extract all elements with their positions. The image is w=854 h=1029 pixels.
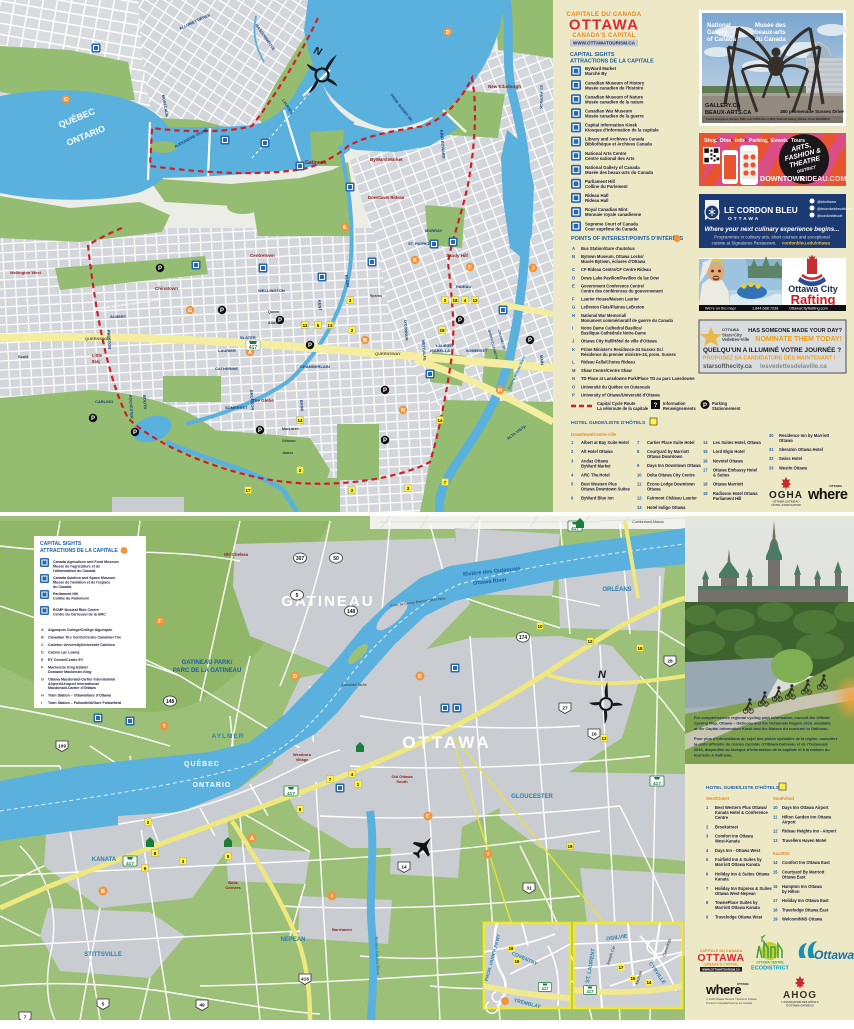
svg-text:Rideau Falls/Chutes Rideau: Rideau Falls/Chutes Rideau — [581, 360, 635, 365]
svg-text:BOOTH: BOOTH — [142, 395, 148, 410]
svg-text:Colline du Parlement: Colline du Parlement — [585, 184, 628, 189]
svg-text:EY Centre/Centre EY: EY Centre/Centre EY — [48, 658, 84, 662]
svg-text:Ottawa: Ottawa — [814, 948, 854, 962]
svg-text:Cour suprême du Canada: Cour suprême du Canada — [585, 226, 638, 231]
svg-text:Alt Hotel Ottawa: Alt Hotel Ottawa — [581, 449, 613, 454]
svg-text:ByWard Market: ByWard Market — [581, 463, 611, 468]
svg-text:@lecordonbleuottawa: @lecordonbleuottawa — [817, 207, 852, 211]
svg-text:ATTRACTIONS DE LA CAPITALE: ATTRACTIONS DE LA CAPITALE — [40, 548, 118, 554]
svg-text:Gatineau: Gatineau — [305, 160, 326, 166]
svg-text:WELLINGTON: WELLINGTON — [258, 288, 285, 293]
svg-text:Italy: Italy — [92, 359, 101, 364]
svg-text:10: 10 — [773, 805, 778, 810]
svg-text:D: D — [572, 275, 575, 280]
svg-text:16: 16 — [703, 458, 708, 463]
svg-text:Musée des: Musée des — [755, 23, 786, 29]
svg-text:OttawaCityRafting.com: OttawaCityRafting.com — [789, 307, 828, 311]
svg-text:H: H — [498, 388, 502, 394]
svg-text:Alexandre Taché: Alexandre Taché — [341, 683, 366, 687]
svg-text:ONTARIO: ONTARIO — [193, 782, 232, 789]
svg-text:Centre des conférences du gouv: Centre des conférences du gouvernement — [581, 289, 664, 294]
svg-text:CHAMBERLAIN: CHAMBERLAIN — [300, 364, 330, 369]
svg-text:P: P — [91, 416, 95, 422]
svg-text:SLATER: SLATER — [240, 335, 256, 340]
svg-text:WWW.OTTAWATOURISM.CA: WWW.OTTAWATOURISM.CA — [573, 41, 636, 46]
svg-text:Gallery: Gallery — [707, 30, 728, 36]
svg-text:A: A — [41, 628, 44, 632]
svg-text:7: 7 — [24, 1015, 27, 1021]
svg-text:tourisme à Gatineau.: tourisme à Gatineau. — [694, 752, 733, 757]
svg-text:TD Place at Lansdowne Park/Pla: TD Place at Lansdowne Park/Place TD au p… — [581, 376, 695, 381]
svg-text:GATINEAU PARK/: GATINEAU PARK/ — [182, 660, 233, 666]
svg-text:ECODISTRICT: ECODISTRICT — [751, 966, 789, 972]
svg-text:LAURIER: LAURIER — [218, 348, 236, 353]
svg-text:West/Ouest: West/Ouest — [706, 796, 730, 801]
svg-text:14: 14 — [773, 860, 778, 865]
svg-text:NEPEAN: NEPEAN — [280, 937, 305, 943]
svg-text:E: E — [343, 225, 347, 231]
svg-text:18: 18 — [637, 646, 643, 651]
svg-text:OTTAWA: OTTAWA — [722, 328, 739, 332]
svg-text:417: 417 — [587, 989, 595, 994]
svg-text:Village: Village — [296, 757, 310, 762]
svg-text:East/Est: East/Est — [773, 851, 790, 856]
svg-text:National: National — [707, 23, 731, 29]
svg-text:Vedettes•Ville: Vedettes•Ville — [722, 337, 750, 342]
svg-text:Mackenzie King Estate/: Mackenzie King Estate/ — [48, 666, 88, 670]
svg-text:15: 15 — [773, 870, 778, 875]
svg-text:Musée canadien de la guerre: Musée canadien de la guerre — [585, 114, 644, 119]
svg-text:Renseignements: Renseignements — [663, 406, 696, 411]
svg-text:Days Inn Ottawa Airport: Days Inn Ottawa Airport — [782, 805, 829, 810]
svg-text:Musée des beaux-arts du Canada: Musée des beaux-arts du Canada — [585, 170, 654, 175]
svg-text:C: C — [572, 267, 575, 272]
svg-text:P: P — [528, 338, 532, 344]
svg-text:QUÉBEC: QUÉBEC — [184, 759, 220, 768]
svg-text:Ottawa City Hall/Hôtel de vill: Ottawa City Hall/Hôtel de ville d'Ottawa — [581, 339, 658, 344]
svg-text:Travelodge Ottawa West: Travelodge Ottawa West — [715, 914, 763, 919]
svg-text:B: B — [101, 889, 105, 895]
svg-text:Sparks: Sparks — [370, 294, 382, 298]
svg-text:380 promenade Sussex Drive: 380 promenade Sussex Drive — [780, 109, 844, 114]
svg-text:Parliament Hill: Parliament Hill — [53, 592, 78, 596]
svg-text:Programmes in culinary arts, s: Programmes in culinary arts, short cours… — [714, 235, 829, 240]
svg-text:18: 18 — [452, 298, 458, 303]
svg-text:16: 16 — [591, 732, 597, 738]
svg-text:I: I — [41, 701, 42, 705]
svg-text:12: 12 — [773, 829, 778, 834]
svg-text:M: M — [572, 368, 576, 373]
svg-text:by Hilton: by Hilton — [782, 889, 800, 894]
svg-text:Westin Ottawa: Westin Ottawa — [779, 465, 808, 470]
svg-text:CANADA'S CAPITAL: CANADA'S CAPITAL — [703, 963, 739, 967]
svg-text:South/Sud: South/Sud — [773, 796, 794, 801]
svg-text:WelcomINNS Ottawa: WelcomINNS Ottawa — [782, 917, 823, 922]
svg-text:West-Kanata: West-Kanata — [715, 839, 740, 844]
svg-text:Ottawa West-Nepean: Ottawa West-Nepean — [715, 891, 756, 896]
svg-text:Basilique-Cathédrale Notre-Dam: Basilique-Cathédrale Notre-Dame — [581, 331, 647, 336]
svg-text:LAURIER: LAURIER — [436, 344, 453, 348]
svg-text:C: C — [41, 643, 44, 647]
svg-text:Little: Little — [92, 353, 103, 358]
svg-text:H: H — [572, 313, 575, 318]
svg-text:19: 19 — [439, 328, 445, 333]
svg-text:19: 19 — [703, 491, 708, 496]
svg-text:•: • — [731, 138, 733, 144]
svg-text:O: O — [64, 97, 69, 103]
svg-text:Airport/Aéroport international: Airport/Aéroport international — [48, 682, 99, 686]
svg-text:Monnaie royale canadienne: Monnaie royale canadienne — [585, 212, 642, 217]
svg-text:•: • — [767, 138, 769, 144]
svg-text:P: P — [278, 318, 282, 324]
svg-text:N: N — [401, 408, 405, 414]
svg-text:28: 28 — [667, 659, 673, 665]
svg-text:109: 109 — [58, 744, 66, 750]
svg-text:H: H — [41, 694, 44, 698]
svg-text:K: K — [413, 258, 417, 264]
svg-text:Université du Québec en Outaou: Université du Québec en Outaouais — [581, 384, 651, 389]
svg-text:Rideau Hall: Rideau Hall — [585, 198, 608, 203]
svg-text:We're on the map!: We're on the map! — [705, 307, 736, 311]
svg-text:Cartier Place Suite Hotel: Cartier Place Suite Hotel — [647, 440, 695, 445]
svg-text:LE CORDON BLEU: LE CORDON BLEU — [724, 206, 798, 215]
svg-text:HAS SOMEONE MADE YOUR DAY?: HAS SOMEONE MADE YOUR DAY? — [748, 328, 842, 334]
svg-text:MURRAY: MURRAY — [425, 228, 443, 233]
svg-text:417: 417 — [126, 861, 134, 867]
svg-text:ByWard Blue Inn: ByWard Blue Inn — [581, 496, 614, 501]
svg-text:307: 307 — [296, 556, 305, 562]
svg-text:Rafting: Rafting — [791, 292, 836, 307]
svg-text:148: 148 — [347, 609, 356, 615]
svg-text:Train Station – Fallowfield/Ga: Train Station – Fallowfield/Gare Fallowf… — [48, 701, 121, 705]
svg-text:P: P — [383, 388, 387, 394]
svg-text:14: 14 — [297, 418, 303, 423]
svg-text:Pour plus d'informations au su: Pour plus d'informations au sujet des pi… — [694, 736, 837, 741]
svg-text:Barrhaven: Barrhaven — [332, 927, 352, 932]
svg-text:Dows Lake Pavilion/Pavillon du: Dows Lake Pavilion/Pavillon du lac Dow — [581, 275, 660, 280]
svg-text:Colline du Parlement: Colline du Parlement — [53, 596, 90, 600]
svg-text:Sandy Hill: Sandy Hill — [446, 253, 468, 258]
svg-text:Kanata: Kanata — [715, 877, 729, 882]
svg-text:G: G — [41, 677, 44, 681]
svg-text:A: A — [572, 246, 575, 251]
svg-text:where: where — [807, 487, 848, 503]
svg-text:417: 417 — [542, 986, 550, 991]
svg-text:cordonbleu.edu/ottawa: cordonbleu.edu/ottawa — [782, 241, 831, 246]
svg-text:Downtown Rideau: Downtown Rideau — [368, 195, 405, 200]
svg-text:Events: Events — [771, 138, 788, 144]
svg-text:ORLÉANS: ORLÉANS — [602, 585, 631, 593]
svg-text:17: 17 — [773, 898, 778, 903]
svg-text:17: 17 — [619, 965, 624, 970]
svg-text:OTTAWA: OTTAWA — [728, 216, 760, 222]
svg-text:POINTS OF INTEREST/POINTS D'IN: POINTS OF INTEREST/POINTS D'INTÉRÊTS — [571, 234, 684, 242]
svg-text:Queen: Queen — [268, 310, 279, 314]
svg-text:27: 27 — [562, 706, 568, 712]
svg-text:HOTEL ASSOCIATION: HOTEL ASSOCIATION — [771, 503, 800, 507]
svg-text:Ottawa Downtown Suites: Ottawa Downtown Suites — [581, 487, 631, 492]
svg-text:417: 417 — [287, 791, 295, 797]
svg-text:5: 5 — [102, 1002, 105, 1008]
svg-text:417: 417 — [249, 345, 258, 351]
svg-text:LeBreton Flats/Plaines LeBreto: LeBreton Flats/Plaines LeBreton — [581, 305, 645, 310]
svg-text:B: B — [41, 636, 44, 640]
svg-text:D: D — [293, 674, 297, 680]
svg-text:Centre du Carrousel de la GRC: Centre du Carrousel de la GRC — [53, 612, 106, 616]
svg-text:P: P — [308, 343, 312, 349]
svg-text:30: 30 — [769, 433, 774, 438]
svg-text:14: 14 — [437, 418, 443, 423]
svg-text:Brookstreet: Brookstreet — [715, 824, 739, 829]
svg-text:AHOG: AHOG — [783, 990, 817, 1001]
svg-text:NOMINATE THEM TODAY!: NOMINATE THEM TODAY! — [755, 336, 842, 343]
svg-text:Ottawa East: Ottawa East — [782, 875, 806, 880]
svg-text:QUELQU'UN A ILLUMINÉ VOTRE JOU: QUELQU'UN A ILLUMINÉ VOTRE JOURNÉE ? — [703, 345, 841, 354]
svg-text:ATTRACTIONS DE LA CAPITALE: ATTRACTIONS DE LA CAPITALE — [570, 59, 654, 65]
svg-text:15: 15 — [703, 449, 708, 454]
svg-text:174: 174 — [519, 635, 528, 641]
svg-text:Info: Info — [735, 138, 745, 144]
svg-text:CF Rideau Centre/CF Centre Rid: CF Rideau Centre/CF Centre Rideau — [581, 267, 651, 272]
svg-text:Comfort Inn Ottawa East: Comfort Inn Ottawa East — [782, 860, 830, 865]
svg-text:16: 16 — [773, 884, 778, 889]
svg-text:14: 14 — [703, 440, 708, 445]
svg-text:beaux-arts: beaux-arts — [755, 30, 786, 36]
svg-text:Centre national des Arts: Centre national des Arts — [585, 156, 635, 161]
svg-text:Marché By: Marché By — [585, 71, 607, 76]
svg-text:Canada Agriculture and Food Mu: Canada Agriculture and Food Museum — [53, 560, 119, 564]
svg-text:Carleton University/Université: Carleton University/Université Carleton — [48, 643, 115, 647]
svg-text:Gilmour: Gilmour — [282, 439, 296, 443]
svg-text:MacLaren: MacLaren — [282, 427, 299, 431]
svg-text:Travellers Haven Motel: Travellers Haven Motel — [782, 838, 826, 843]
svg-text:12: 12 — [472, 298, 478, 303]
svg-text:11: 11 — [637, 482, 642, 487]
svg-text:P: P — [133, 430, 137, 436]
svg-text:Days Inn Downtown Ottawa: Days Inn Downtown Ottawa — [647, 463, 701, 468]
svg-text:Marriott Ottawa Kanata: Marriott Ottawa Kanata — [715, 905, 761, 910]
svg-text:12: 12 — [637, 496, 642, 501]
svg-text:du Canada: du Canada — [53, 585, 72, 589]
svg-text:2016, disponible au kiosque d': 2016, disponible au kiosque d'informatio… — [694, 747, 830, 752]
svg-text:32: 32 — [769, 456, 774, 461]
svg-text:Canadian Tire Centre/Centre Ca: Canadian Tire Centre/Centre Canadian Tir… — [48, 636, 121, 640]
svg-text:© 2015 Ottawa Tourism / Touris: © 2015 Ottawa Tourism / Tourisme Ottawa — [706, 997, 757, 1001]
svg-text:Marriott Ottawa Kanata: Marriott Ottawa Kanata — [715, 862, 761, 867]
svg-text:417: 417 — [653, 781, 661, 787]
svg-text:QUEENSWAY: QUEENSWAY — [375, 351, 401, 356]
svg-text:Airport: Airport — [782, 819, 796, 824]
svg-text:Louise Bourgeois, Maman, 1999,: Louise Bourgeois, Maman, 1999, cast 2003… — [706, 117, 830, 121]
svg-text:G: G — [572, 305, 575, 310]
svg-text:50: 50 — [333, 556, 339, 562]
svg-text:OTTAWA: OTTAWA — [402, 733, 491, 752]
svg-text:148: 148 — [166, 699, 175, 705]
svg-text:Macdonald-Cartier d'Ottawa: Macdonald-Cartier d'Ottawa — [48, 686, 97, 690]
svg-text:Casino Lac Leamy: Casino Lac Leamy — [48, 651, 80, 655]
svg-text:11: 11 — [303, 323, 308, 328]
svg-text:Musée de l'agriculture et de: Musée de l'agriculture et de — [53, 564, 100, 568]
svg-text:P: P — [383, 438, 387, 444]
svg-text:Days Inn - Ottawa West: Days Inn - Ottawa West — [715, 848, 761, 853]
svg-text:12: 12 — [587, 639, 593, 644]
svg-text:Monument commémoratif de guerr: Monument commémoratif de guerre du Canad… — [581, 318, 674, 323]
svg-text:Corners: Corners — [225, 885, 241, 890]
svg-text:Parking: Parking — [749, 138, 768, 144]
svg-text:ByWard Market: ByWard Market — [370, 157, 403, 162]
svg-text:Ottawa: Ottawa — [779, 438, 793, 443]
svg-text:RCMP Musical Ride Centre: RCMP Musical Ride Centre — [53, 608, 99, 612]
svg-text:D: D — [41, 651, 44, 655]
svg-text:I: I — [572, 326, 573, 331]
svg-text:Musée canadien de l'histoire: Musée canadien de l'histoire — [585, 85, 644, 90]
svg-text:Downtown/Centre-ville: Downtown/Centre-ville — [571, 432, 617, 437]
svg-text:Domaine Mackenzie-King: Domaine Mackenzie-King — [48, 670, 91, 674]
svg-text:Bus Station/Gare d'autobus: Bus Station/Gare d'autobus — [581, 246, 635, 251]
svg-text:@lcbottawa: @lcbottawa — [817, 200, 836, 204]
svg-text:Bibliothèque et Archives Canad: Bibliothèque et Archives Canada — [585, 142, 653, 147]
svg-text:J: J — [531, 266, 534, 272]
svg-text:18: 18 — [773, 907, 778, 912]
svg-text:416: 416 — [301, 977, 309, 983]
svg-text:Ottawa Downtown: Ottawa Downtown — [647, 454, 683, 459]
svg-text:ALBERT: ALBERT — [110, 314, 127, 319]
svg-text:D: D — [446, 30, 450, 36]
svg-text:CARLING: CARLING — [95, 399, 113, 404]
svg-text:University of Ottawa/Universit: University of Ottawa/Université d'Ottawa — [581, 393, 660, 398]
svg-text:•: • — [745, 138, 747, 144]
svg-text:C: C — [426, 814, 430, 820]
svg-text:Musée canadien de la nature: Musée canadien de la nature — [585, 99, 644, 104]
svg-text:P: P — [703, 403, 707, 409]
svg-text:19: 19 — [773, 917, 778, 922]
svg-text:Holiday Inn Ottawa East: Holiday Inn Ottawa East — [782, 898, 829, 903]
svg-text:OTTAWA: OTTAWA — [569, 17, 639, 34]
svg-text:@cordonbleuott: @cordonbleuott — [817, 214, 842, 218]
svg-text:James: James — [282, 451, 293, 455]
svg-text:10: 10 — [637, 472, 642, 477]
svg-text:MAIN: MAIN — [539, 355, 545, 366]
svg-text:Fairmont Château Laurier: Fairmont Château Laurier — [647, 496, 697, 501]
svg-text:Wellington West: Wellington West — [10, 270, 42, 275]
svg-text:Sheraton Ottawa Hotel: Sheraton Ottawa Hotel — [779, 447, 823, 452]
svg-text:CANADA'S CAPITAL: CANADA'S CAPITAL — [572, 33, 635, 39]
svg-text:•: • — [716, 138, 718, 144]
svg-text:BANK: BANK — [299, 400, 305, 412]
svg-text:OTTAWA CENTRE: OTTAWA CENTRE — [756, 961, 783, 965]
svg-text:Musée Bytown, écluses d'Ottawa: Musée Bytown, écluses d'Ottawa — [581, 259, 646, 264]
svg-text:Musée de l'aviation et de l'es: Musée de l'aviation et de l'espace — [53, 580, 110, 584]
svg-text:1.844.688.7238: 1.844.688.7238 — [752, 307, 778, 311]
svg-text:P: P — [258, 428, 262, 434]
svg-text:P: P — [220, 308, 224, 314]
svg-text:where: where — [705, 982, 741, 997]
svg-text:Centretown: Centretown — [250, 253, 275, 258]
svg-text:PROPOSEZ SA CANDIDATURE DÈS MA: PROPOSEZ SA CANDIDATURE DÈS MAINTENANT ! — [703, 354, 836, 362]
svg-text:Algonquin College/Collège Algo: Algonquin College/Collège Algonquin — [48, 628, 112, 632]
svg-text:ST. PATRICK: ST. PATRICK — [539, 85, 544, 109]
svg-text:Swiss Hotel: Swiss Hotel — [779, 456, 802, 461]
svg-text:E: E — [572, 284, 575, 289]
svg-text:du Canada: du Canada — [755, 37, 786, 43]
svg-text:Travelodge Ottawa East: Travelodge Ottawa East — [782, 907, 829, 912]
svg-text:ARC The.Hotel: ARC The.Hotel — [581, 472, 610, 477]
svg-text:Shaw Centre/Centre Shaw: Shaw Centre/Centre Shaw — [581, 368, 633, 373]
svg-text:Old Chelsea: Old Chelsea — [224, 552, 249, 557]
svg-text:Printed in Canada/Imprimé au C: Printed in Canada/Imprimé au Canada — [706, 1001, 752, 1005]
svg-text:CAPITAL SIGHTS: CAPITAL SIGHTS — [570, 52, 615, 58]
svg-text:49: 49 — [199, 1003, 205, 1009]
svg-text:L: L — [572, 360, 575, 365]
svg-text:11: 11 — [773, 814, 778, 819]
svg-text:KANATA: KANATA — [92, 857, 117, 863]
svg-text:lesvedettesdelaville.ca: lesvedettesdelaville.ca — [760, 363, 827, 370]
svg-text:F: F — [572, 296, 575, 301]
svg-text:Cycling Map, Ottawa – Gatineau: Cycling Map, Ottawa – Gatineau and the O… — [694, 720, 831, 725]
svg-text:BEAUX-ARTS.CA: BEAUX-ARTS.CA — [705, 110, 751, 116]
svg-text:Laurier House/Maison Laurier: Laurier House/Maison Laurier — [581, 296, 639, 301]
svg-text:N: N — [572, 376, 575, 381]
svg-text:Stationnement: Stationnement — [712, 406, 741, 411]
svg-text:La véloroute de la capitale: La véloroute de la capitale — [597, 406, 649, 411]
svg-text:Delta Ottawa City Centre: Delta Ottawa City Centre — [647, 472, 695, 477]
svg-text:Kiosque d'information de la ca: Kiosque d'information de la capitale — [585, 128, 659, 133]
svg-text:Tours: Tours — [791, 138, 805, 144]
svg-text:Parliament Hill: Parliament Hill — [713, 496, 741, 501]
svg-text:CAPITAL SIGHTS: CAPITAL SIGHTS — [40, 541, 82, 547]
svg-text:Where your next culinary exper: Where your next culinary experience begi… — [705, 226, 840, 233]
svg-text:Hotel Indigo Ottawa: Hotel Indigo Ottawa — [647, 505, 686, 510]
svg-text:Ottawa Marriott: Ottawa Marriott — [713, 482, 744, 487]
svg-text:Albert at Bay Suite Hotel: Albert at Bay Suite Hotel — [581, 440, 629, 445]
svg-text:Novotel Ottawa: Novotel Ottawa — [713, 458, 744, 463]
svg-text:Cumberland-Mason: Cumberland-Mason — [632, 520, 664, 524]
svg-text:5: 5 — [296, 593, 299, 599]
svg-text:17: 17 — [703, 468, 708, 473]
svg-text:G: G — [188, 308, 192, 314]
svg-text:at the Capital Information Kio: at the Capital Information Kiosk and the… — [694, 726, 829, 731]
svg-text:la carte officielle du réseau: la carte officielle du réseau cyclable d… — [694, 742, 828, 747]
svg-text:STITTSVILLE: STITTSVILLE — [84, 952, 122, 958]
svg-text:15: 15 — [631, 976, 636, 981]
svg-text:Dine: Dine — [720, 138, 731, 144]
svg-text:33: 33 — [769, 465, 774, 470]
svg-text:DOWNTOWN: DOWNTOWN — [760, 174, 805, 183]
svg-text:GALLERY.CA: GALLERY.CA — [705, 103, 741, 109]
svg-text:13: 13 — [327, 323, 333, 328]
svg-text:Ottawa: Ottawa — [647, 487, 661, 492]
svg-text:Les Suites Hotel, Ottawa: Les Suites Hotel, Ottawa — [713, 440, 761, 445]
svg-text:l'alimentation du Canada: l'alimentation du Canada — [53, 569, 96, 573]
svg-text:18: 18 — [703, 482, 708, 487]
svg-text:13: 13 — [637, 505, 642, 510]
svg-text:E: E — [418, 674, 422, 680]
svg-text:15: 15 — [515, 959, 520, 964]
svg-text:P: P — [458, 318, 462, 324]
svg-text:RIDEAU.COM: RIDEAU.COM — [800, 174, 846, 183]
svg-text:South: South — [396, 779, 408, 784]
svg-text:A: A — [250, 836, 254, 842]
svg-text:Scott: Scott — [18, 354, 29, 359]
svg-text:PARC DE LA GATINEAU: PARC DE LA GATINEAU — [173, 668, 242, 674]
svg-text:P: P — [572, 393, 575, 398]
svg-text:B: B — [363, 338, 367, 344]
svg-text:N: N — [598, 669, 607, 681]
svg-text:New Edinburgh: New Edinburgh — [488, 84, 521, 89]
svg-text:10: 10 — [537, 624, 543, 629]
svg-text:17: 17 — [245, 488, 251, 493]
svg-text:KENT: KENT — [317, 300, 323, 312]
